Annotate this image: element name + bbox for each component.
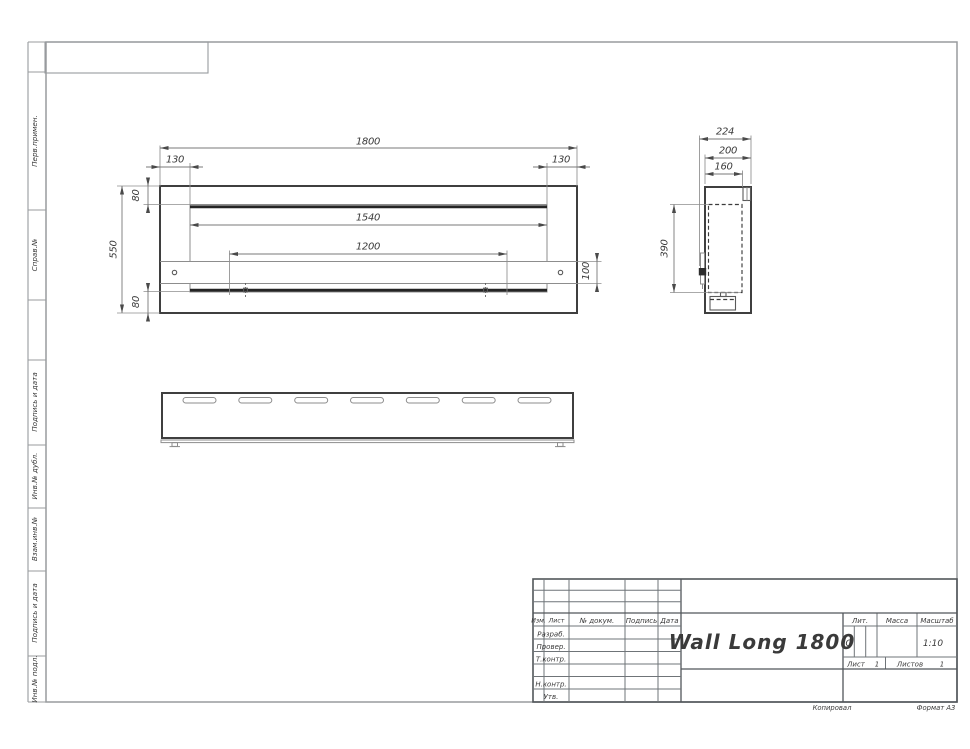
plan-foot-left [170, 443, 181, 447]
stamp-mass-label: Масса [886, 617, 908, 625]
stamp-sheet-value: 1 [875, 661, 879, 669]
margin-label-inv-dubl: Инв.№ дубл. [30, 453, 39, 500]
sheet-frame [28, 42, 957, 702]
stamp-col-podpis: Подпись [626, 617, 658, 625]
front-view: 1800 130 130 1540 1200 550 80 80 100 [109, 137, 602, 321]
stamp-col-data: Дата [659, 617, 678, 625]
dim-front-overall-width: 1800 [356, 137, 380, 148]
stamp-row-nkontr: Н.контр. [535, 681, 566, 689]
footer-format: Формат А3 [917, 704, 956, 712]
margin-label-vzam-inv: Взам.инв.№ [30, 517, 39, 561]
margin-label-inv-podl: Инв.№ подл. [30, 655, 39, 702]
stamp-row-prover: Провер. [536, 643, 565, 651]
dim-front-opening-width: 1540 [356, 213, 380, 224]
dim-front-bottom-offset: 80 [131, 296, 142, 308]
footer-copied-by: Копировал [813, 704, 852, 712]
margin-label-podpis-data-2: Подпись и дата [30, 583, 39, 643]
plan-view [161, 393, 574, 447]
margin-label-podpis-data-1: Подпись и дата [30, 372, 39, 432]
dim-side-overall-depth: 224 [716, 127, 734, 138]
dim-front-offset-right: 130 [552, 155, 570, 166]
margin-labels: Перв.примен. Справ.№ Подпись и дата Инв.… [30, 115, 39, 702]
drawing-sheet: Перв.примен. Справ.№ Подпись и дата Инв.… [0, 0, 970, 749]
stamp-sheets-label: Листов [896, 661, 923, 669]
dim-side-inner-depth: 160 [714, 162, 732, 173]
side-view: 224 200 160 390 [660, 127, 752, 314]
margin-label-sprav-no: Справ.№ [30, 239, 39, 272]
stamp-col-list: Лист [548, 618, 565, 625]
dim-front-inner-width: 1200 [356, 242, 380, 253]
side-outer-contour [705, 187, 751, 313]
stamp-col-docnum: № докум. [579, 617, 615, 625]
stamp-col-izm: Изм. [531, 618, 546, 625]
plan-vent-slots [183, 398, 551, 404]
side-hidden-cavity [709, 205, 743, 293]
stamp-lit-label: Лит. [851, 617, 868, 625]
stamp-row-razrab: Разраб. [537, 631, 565, 639]
plan-bottom-rail [161, 440, 574, 443]
stamp-row-utv: Утв. [544, 693, 559, 701]
stamp-row-tkontr: Т.контр. [536, 656, 566, 664]
dim-side-body-depth: 200 [719, 146, 737, 157]
plan-outer-contour [162, 393, 573, 438]
stamp-sheets-value: 1 [940, 661, 944, 669]
side-bottom-box [710, 293, 736, 311]
stamp-scale-label: Масштаб [920, 617, 954, 625]
title-block: Изм. Лист № докум. Подпись Дата Разраб. … [531, 579, 957, 702]
stamp-scale-value: 1:10 [923, 639, 943, 649]
footer: Копировал Формат А3 [813, 704, 956, 712]
dim-front-strip-height: 100 [581, 262, 592, 280]
dim-front-overall-height: 550 [109, 240, 120, 258]
top-designation-box [45, 42, 208, 73]
engineering-drawing-canvas: Перв.примен. Справ.№ Подпись и дата Инв.… [0, 0, 970, 749]
dim-front-top-offset: 80 [131, 189, 142, 201]
document-title: Wall Long 1800 [669, 630, 856, 654]
margin-label-perv-primen: Перв.примен. [30, 115, 39, 167]
front-mount-strip [161, 262, 576, 283]
dim-front-offset-left: 130 [166, 155, 184, 166]
stamp-lit-value: О [845, 639, 852, 649]
stamp-sheet-label: Лист [846, 661, 866, 669]
dim-side-opening-height: 390 [660, 239, 671, 257]
plan-foot-right [555, 443, 566, 447]
